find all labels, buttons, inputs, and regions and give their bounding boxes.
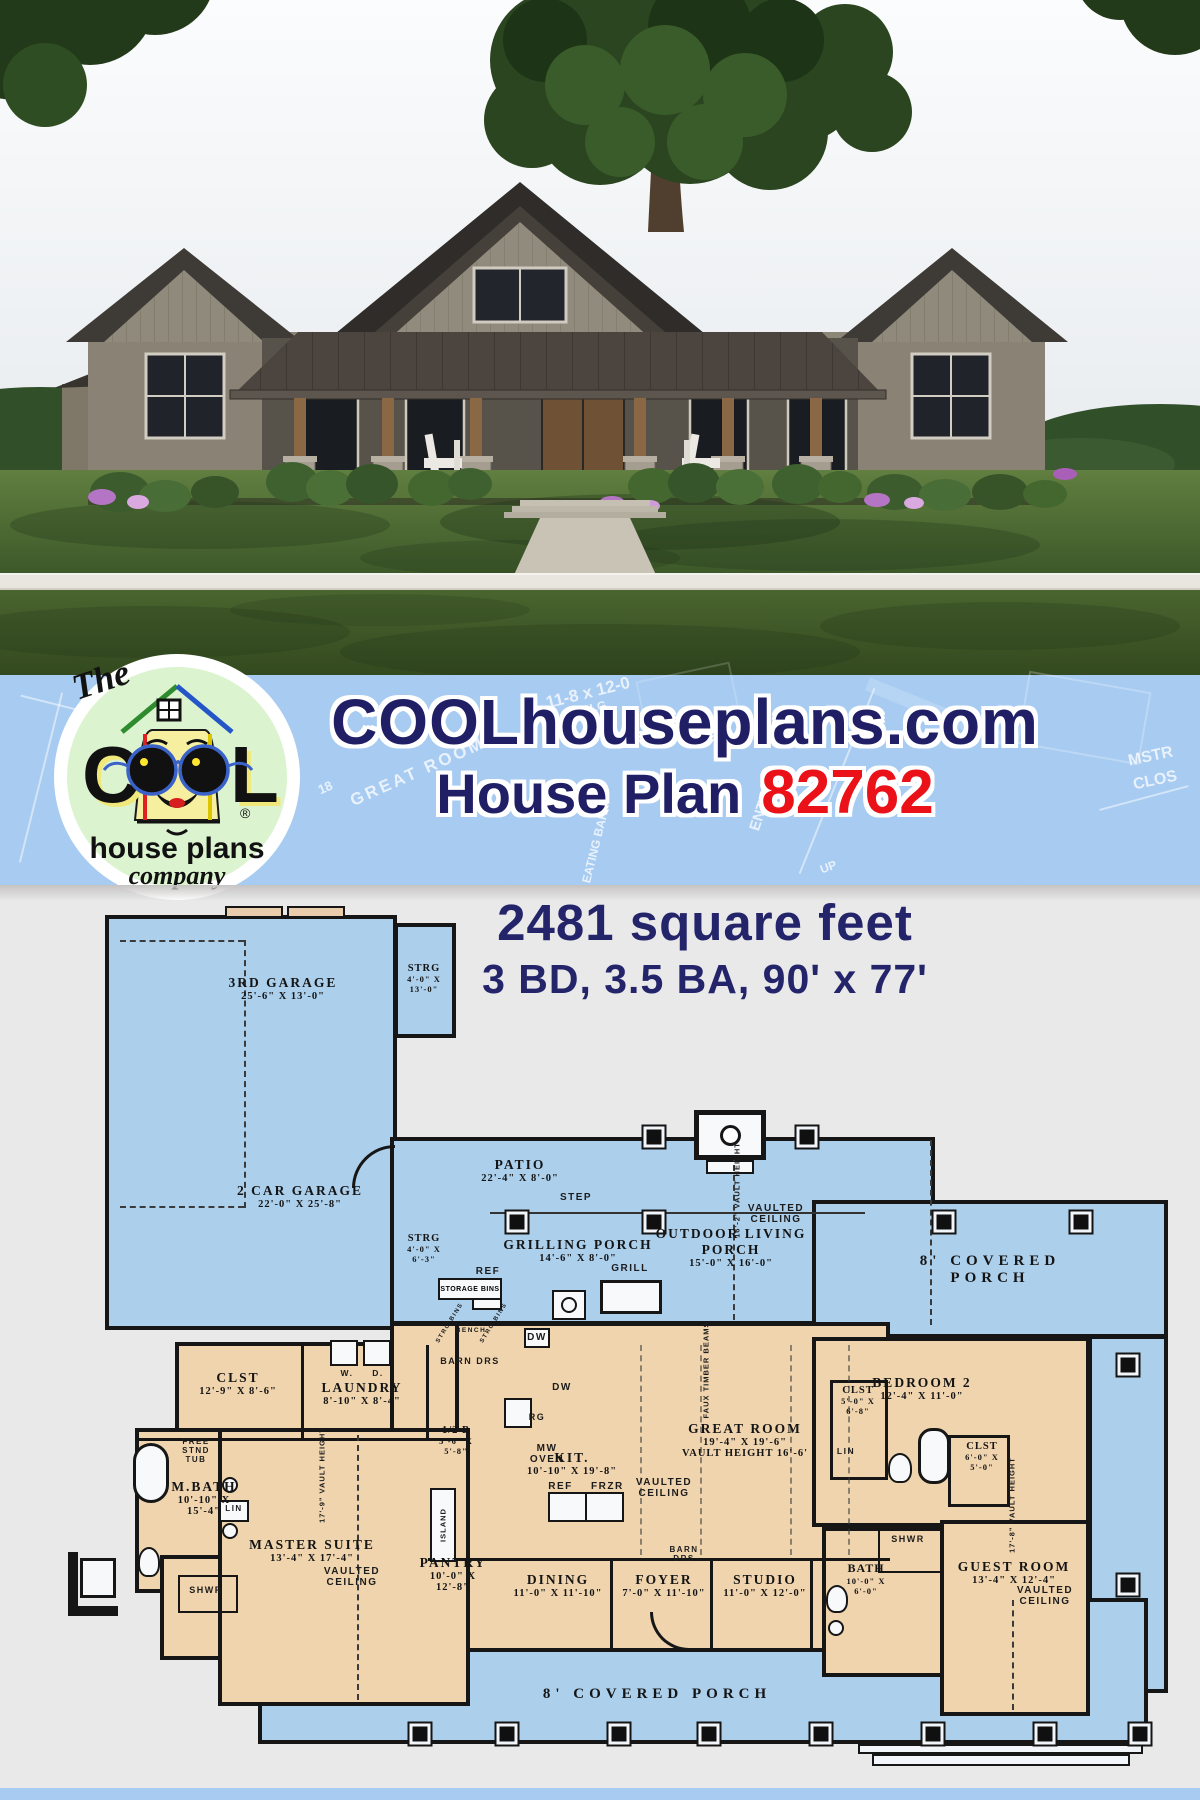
porch-column [1074,1215,1089,1230]
room-label-bath-right: BATH 10'-0" X 6'-0" [847,1561,886,1596]
grill-label: GRILL [611,1263,649,1274]
washer-label: W. [341,1368,354,1378]
tub-label: FREE STND TUB [174,1437,218,1465]
vanity-sink [828,1620,844,1636]
banner: 11-8 x 12-0 10' CLG GREAT ROOM 18 EATING… [0,675,1200,885]
faux-timber-beams-label: FAUX TIMBER BEAMS [702,1321,711,1418]
vaulted-ceiling-label: VAULTED CEILING [324,1566,380,1588]
cool-house-plans-logo: The C C L L ® [52,652,302,902]
banner-titles: COOLhouseplans.com House Plan 82762 [300,689,1070,824]
dryer-label: D. [372,1368,384,1378]
left-stoop-wall [68,1606,118,1616]
bench-label: BENCH [456,1327,487,1334]
porch-column [1121,1578,1136,1593]
range-label: RG [529,1412,546,1422]
porch-column [702,1727,717,1742]
dashed-line [120,940,244,942]
logo-l: L [230,730,279,819]
plan-label: House Plan [436,766,741,822]
room-label-3rd-garage: 3RD GARAGE 25'-6" X 13'-0" [229,975,338,1002]
room-label-covered-porch-bottom: 8' COVERED PORCH [543,1686,771,1703]
dishwasher-label: DW [527,1332,547,1343]
bed-bath-size: 3 BD, 3.5 BA, 90' x 77' [430,956,980,1003]
wall [428,1558,890,1561]
floor-plan-section: 2481 square feet 3 BD, 3.5 BA, 90' x 77' [0,885,1200,1800]
vaulted-ceiling-label: VAULTED CEILING [1017,1585,1073,1607]
barn-doors-label: BARN DRS [669,1545,698,1563]
room-label-laundry: LAUNDRY 8'-10" X 8'-4" [321,1380,402,1407]
garage-door [225,906,283,918]
room-label-2-car-garage: 2 CAR GARAGE 22'-0" X 25'-8" [237,1183,363,1210]
wall [426,1345,429,1441]
house-photo [0,0,1200,675]
washer [330,1340,358,1366]
plan-title-line: House Plan 82762 [300,762,1070,824]
cabinet-divider [585,1494,587,1520]
wall [610,1558,613,1652]
wall [810,1558,813,1652]
dashed-line [930,1140,932,1325]
room-label-guest-room: GUEST ROOM 13'-4" X 12'-4" [958,1559,1070,1586]
porch-column [926,1727,941,1742]
porch-column [500,1727,515,1742]
linen-label: LIN [837,1446,855,1456]
room-label-grilling-porch: GRILLING PORCH 14'-6" X 8'-0" [503,1237,652,1264]
shower-label: SHWR [189,1585,223,1595]
room-label-half-bath: 1/2 B 5'-6" X 5'-8" [439,1425,473,1456]
room-label-studio: STUDIO 11'-0" X 12'-0" [723,1572,806,1599]
step-label: STEP [560,1192,592,1203]
plan-stats: 2481 square feet 3 BD, 3.5 BA, 90' x 77' [430,893,980,1003]
porch-column [510,1215,525,1230]
room-label-clst-left: CLST 12'-9" X 8'-6" [199,1370,277,1397]
porch-column [1121,1358,1136,1373]
vaulted-ceiling-label: VAULTED CEILING [748,1203,804,1225]
left-stoop [80,1558,116,1598]
bottom-blue-strip [0,1788,1200,1800]
porch-sink [552,1290,586,1320]
fireplace-hearth [706,1160,754,1174]
toilet [138,1547,160,1577]
page: { "banner": { "site_title": "COOLhousepl… [0,0,1200,1800]
linen-label: LIN [225,1504,242,1513]
wall [301,1345,304,1441]
porch-column [1133,1727,1148,1742]
watermark-text: UP [818,858,838,877]
dashed-line [640,1345,642,1555]
vault-height-label: 16'-2" VAULT HEIGHT [733,1142,742,1238]
front-steps [872,1754,1130,1766]
wall [710,1558,713,1652]
ref-label: REF [476,1266,501,1277]
porch-column [413,1727,428,1742]
room-label-bedroom2: BEDROOM 2 12'-4" X 11'-0" [872,1375,971,1402]
bathtub [918,1428,950,1484]
outdoor-fireplace [694,1110,766,1160]
garage-door [287,906,345,918]
room-label-foyer: FOYER 7'-0" X 11'-10" [622,1572,705,1599]
room-label-master-suite: MASTER SUITE 13'-4" X 17'-4" [249,1537,375,1564]
toilet [888,1453,912,1483]
porch-column [647,1130,662,1145]
registered-mark: ® [240,805,251,821]
room-label-kitchen: KIT. 10'-10" X 19'-8" [527,1450,617,1477]
room-label-clst-bed2: CLST 5'-0" X 6'-8" [841,1385,875,1416]
vault-height-label: 17'-9" VAULT HEIGHT [318,1427,327,1523]
porch-column [800,1130,815,1145]
grill [600,1280,662,1314]
room-label-dining: DINING 11'-0" X 11'-10" [514,1572,603,1599]
step-line [490,1212,865,1214]
site-title: COOLhouseplans.com [300,689,1070,756]
toilet [826,1585,848,1613]
ref-frzr-cabinet [548,1492,624,1522]
dashed-line [120,1206,244,1208]
front-steps [858,1744,1143,1754]
storage-bins-label: STORAGE BINS [440,1286,499,1293]
porch-column [612,1727,627,1742]
room-label-great-room: GREAT ROOM 19'-4" X 19'-6" VAULT HEIGHT … [682,1421,808,1459]
room-label-strg-mid: STRG 4'-0" X 6'-3" [407,1233,441,1264]
room-label-pantry: PANTRY 10'-0" X 12'-8" [420,1555,487,1593]
shower-label: SHWR [891,1534,925,1544]
barn-doors-label: BARN DRS [440,1356,500,1366]
porch-column [937,1215,952,1230]
ref-frzr-label: REF FRZR [548,1481,623,1492]
porch-column [814,1727,829,1742]
room-label-outdoor-living-porch: OUTDOOR LIVING PORCH 15'-0" X 16'-0" [656,1226,807,1269]
island-label: ISLAND [439,1508,448,1542]
sink-basin [561,1297,577,1313]
room-label-clst-guest: CLST 6'-0" X 5'-0" [965,1441,999,1472]
plan-number: 82762 [761,762,933,824]
square-feet: 2481 square feet [430,893,980,952]
room-label-covered-porch-right: 8' COVERED PORCH [885,1253,1095,1287]
porch-column [1038,1727,1053,1742]
dashed-line [1012,1600,1014,1710]
house-rendering-svg [0,0,1200,675]
dishwasher-label: DW [552,1382,572,1393]
room-label-patio: PATIO 22'-4" X 8'-0" [481,1157,559,1184]
dryer [363,1340,391,1366]
storage-bins-cabinet: STORAGE BINS [438,1278,502,1300]
vaulted-ceiling-label: VAULTED CEILING [636,1477,692,1499]
vault-height-label: 17'-8" VAULT HEIGHT [1008,1457,1017,1553]
vanity-sink [222,1523,238,1539]
free-standing-tub [133,1443,169,1503]
